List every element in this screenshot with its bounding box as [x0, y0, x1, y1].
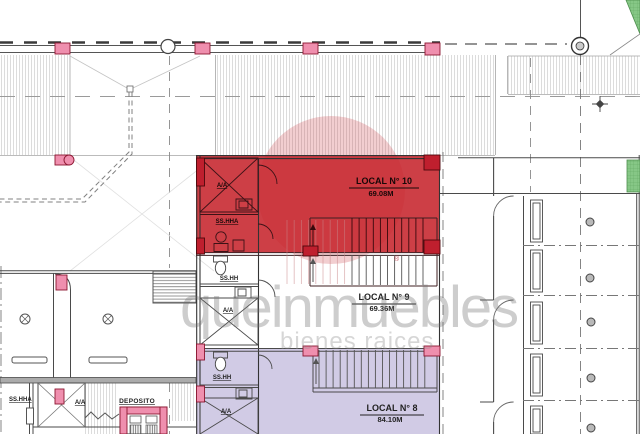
green-areas [610, 0, 640, 192]
label-ac-local-10: A/A [217, 183, 228, 189]
registered-mark: ® [394, 255, 400, 263]
label-bath-local-10: SS.HHA [216, 219, 239, 225]
watermark-tagline: bienes raices [280, 328, 434, 355]
label-deposit: DEPOSITO [119, 398, 155, 405]
thick-wall [0, 378, 196, 384]
survey-cross-symbol [592, 96, 608, 112]
canopy-apex-symbol [127, 86, 133, 92]
label-local-8: LOCAL N° 8 [367, 403, 418, 413]
wheel-stop [89, 357, 127, 363]
floor-plan: LOCAL N° 10 69.08M LOCAL N° 9 69.36M LOC… [0, 0, 640, 434]
label-bath-basement: SS.HHA [9, 397, 32, 403]
door [27, 408, 34, 424]
elevator-shaft [120, 407, 167, 434]
grid-bubble [161, 40, 175, 54]
brand-watermark: queinmuebles bienes raices [180, 275, 517, 355]
label-ac-local-8: A/A [221, 409, 232, 415]
label-local-10: LOCAL N° 10 [356, 176, 412, 186]
unit-symbols [586, 218, 595, 432]
zone-local-10 [196, 155, 440, 253]
label-ac-basement: A/A [75, 400, 86, 406]
label-local-10-area: 69.08M [368, 189, 393, 198]
label-local-8-area: 84.10M [377, 415, 402, 424]
label-bath-local-8: SS.HH [213, 375, 231, 381]
wheel-stop [12, 357, 47, 363]
unit-door-panels [531, 200, 543, 434]
